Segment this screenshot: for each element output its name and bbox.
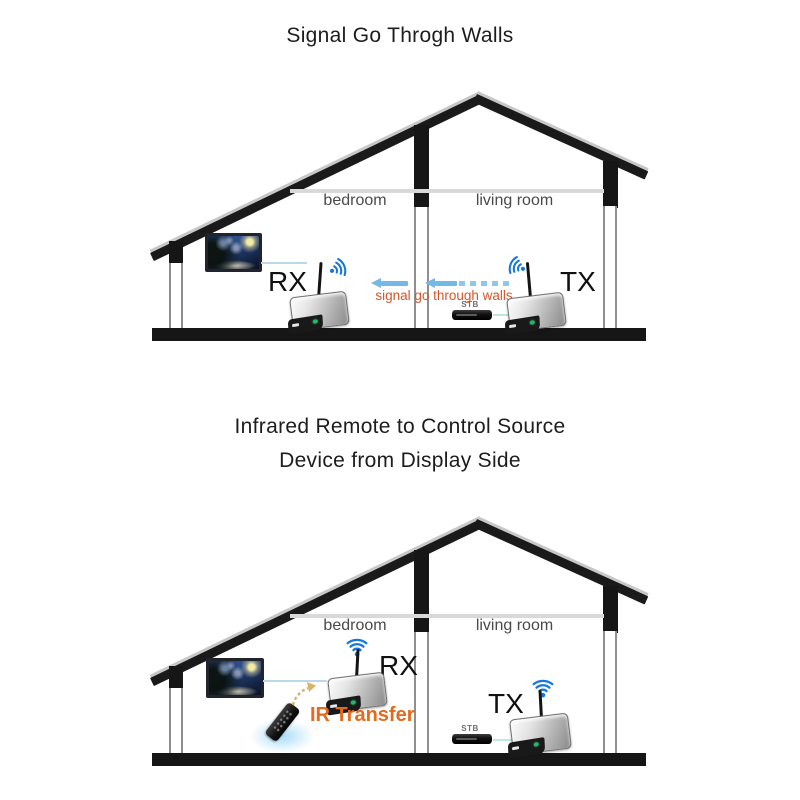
house2-right-wall [603,631,617,755]
house2-left-wall-top [169,666,183,690]
stb-to-tx-cable [493,314,509,316]
house1-center-wall [414,207,429,330]
signal-arrow-shaft [435,281,457,286]
house2-roof-right [473,519,648,605]
house1-right-wall [603,206,617,330]
tx-device [511,716,570,752]
signal-dashed-line [459,281,514,286]
product-infographic: Signal Go Throgh Walls bedroom living ro… [0,0,800,800]
house1-floor [152,328,646,341]
stb-label-1: STB [453,300,487,309]
house1-roof-left [150,93,485,261]
signal-arrow-icon [425,278,435,288]
set-top-box [452,734,492,744]
tv-screen [206,658,264,698]
hdmi-port [509,324,516,328]
stb-to-tx-cable [493,739,512,741]
power-led [312,319,317,324]
ir-transfer-text: IR Transfer [310,704,414,727]
house1-roof-right [473,94,648,180]
tx-antenna [526,262,532,298]
house2-right-wall-top [603,586,618,633]
stb-label-2: STB [453,724,487,733]
tv-to-rx-cable [261,262,307,264]
house2-left-wall [169,688,183,755]
tv-screen [205,233,262,272]
house2-center-wall-top [414,550,429,634]
set-top-box [452,310,492,320]
house1-living-room-label: living room [452,192,577,210]
house2-roof-left [150,518,485,686]
hdmi-port [512,747,519,751]
tx-device [508,295,565,329]
house1-center-wall-top [414,125,429,209]
rx-device [291,294,348,328]
house1-left-wall-top [169,241,183,265]
wifi-signal-icon [530,674,556,700]
house2-floor [152,753,646,766]
signal-through-walls-text: signal go through walls [372,288,516,303]
diagram2-title-line1: Infrared Remote to Control Source [0,410,800,444]
diagram2-title: Infrared Remote to Control Source Device… [0,410,800,478]
signal-arrow-shaft [381,281,408,286]
wifi-signal-icon [323,252,354,283]
house1-right-wall-top [603,161,618,208]
power-led [533,742,538,747]
diagram2-title-line2: Device from Display Side [0,444,800,478]
power-led [529,320,534,325]
house2-living-room-label: living room [452,617,577,635]
diagram1-title: Signal Go Throgh Walls [0,24,800,48]
hdmi-port [292,323,299,327]
signal-arrow-icon [371,278,381,288]
tx-label-1: TX [560,266,596,298]
house1-bedroom-label: bedroom [297,192,413,210]
house1-left-wall [169,263,183,330]
